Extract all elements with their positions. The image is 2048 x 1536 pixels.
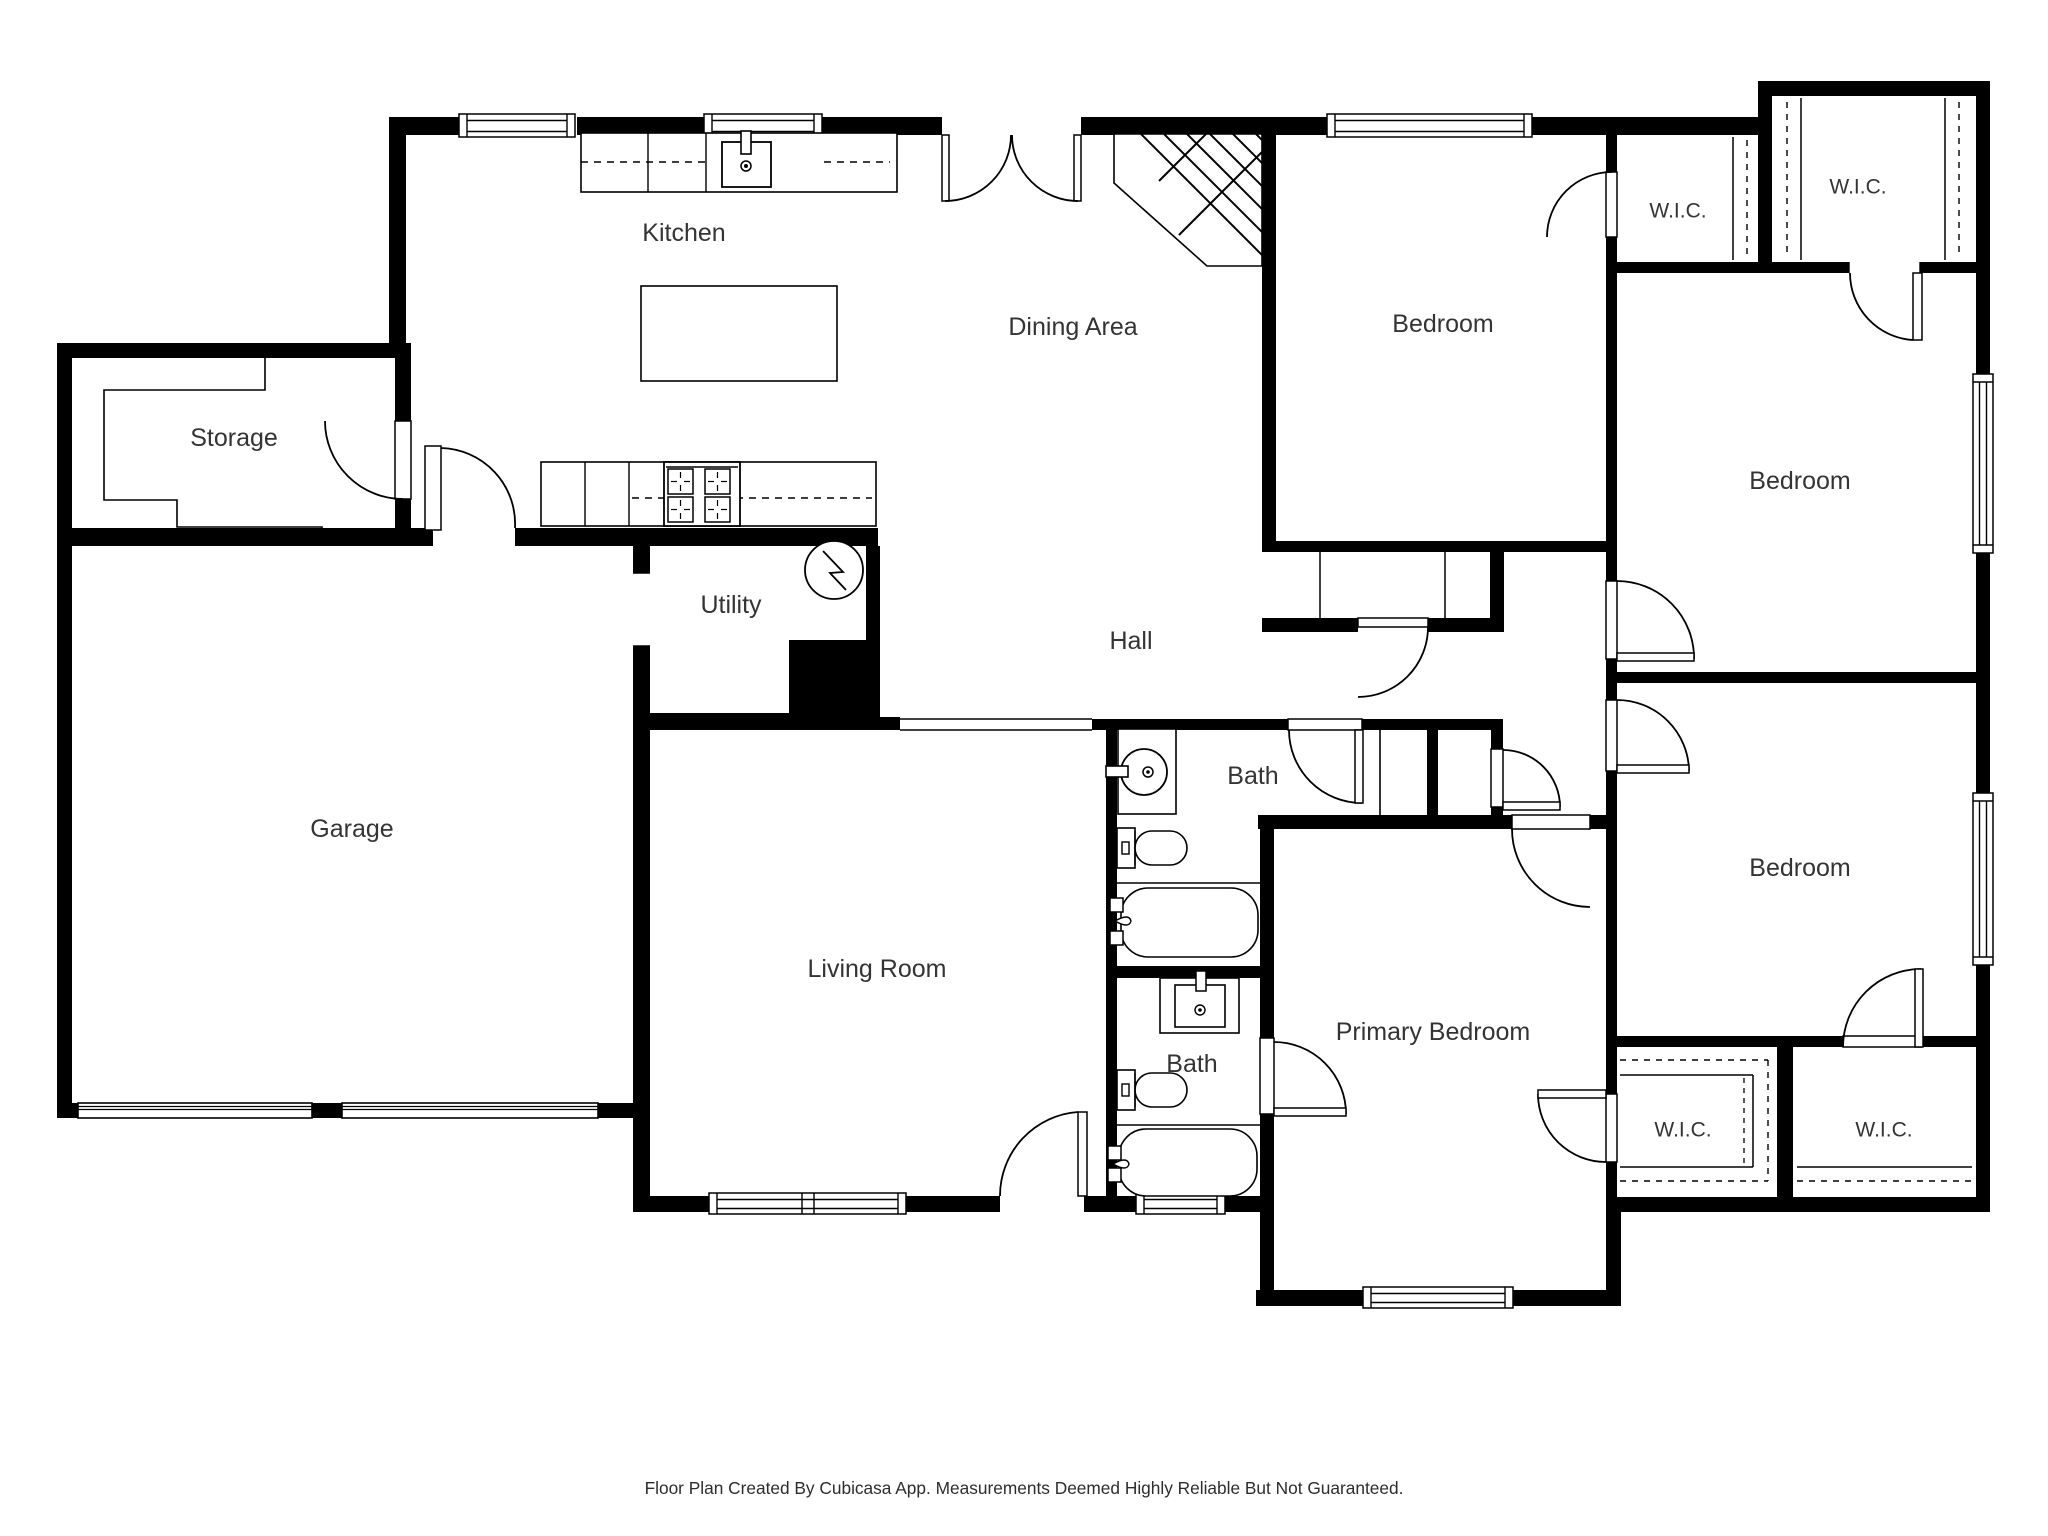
svg-text:W.I.C.: W.I.C.	[1829, 176, 1886, 199]
svg-text:Bath: Bath	[1166, 1050, 1217, 1078]
svg-text:Utility: Utility	[700, 591, 762, 619]
svg-text:Bedroom: Bedroom	[1749, 854, 1850, 882]
svg-text:Storage: Storage	[190, 424, 278, 452]
svg-text:Living Room: Living Room	[808, 955, 947, 983]
svg-text:Floor Plan Created By Cubicasa: Floor Plan Created By Cubicasa App. Meas…	[645, 1478, 1404, 1498]
svg-text:Hall: Hall	[1109, 627, 1152, 655]
svg-text:Bath: Bath	[1227, 762, 1278, 790]
svg-text:W.I.C.: W.I.C.	[1649, 200, 1706, 223]
svg-text:Garage: Garage	[310, 815, 393, 843]
svg-text:Kitchen: Kitchen	[642, 219, 725, 247]
svg-text:Bedroom: Bedroom	[1749, 467, 1850, 495]
svg-text:W.I.C.: W.I.C.	[1855, 1119, 1912, 1142]
svg-text:Primary Bedroom: Primary Bedroom	[1336, 1018, 1531, 1046]
svg-text:Bedroom: Bedroom	[1392, 310, 1493, 338]
svg-text:W.I.C.: W.I.C.	[1654, 1119, 1711, 1142]
svg-text:Dining Area: Dining Area	[1008, 313, 1137, 341]
